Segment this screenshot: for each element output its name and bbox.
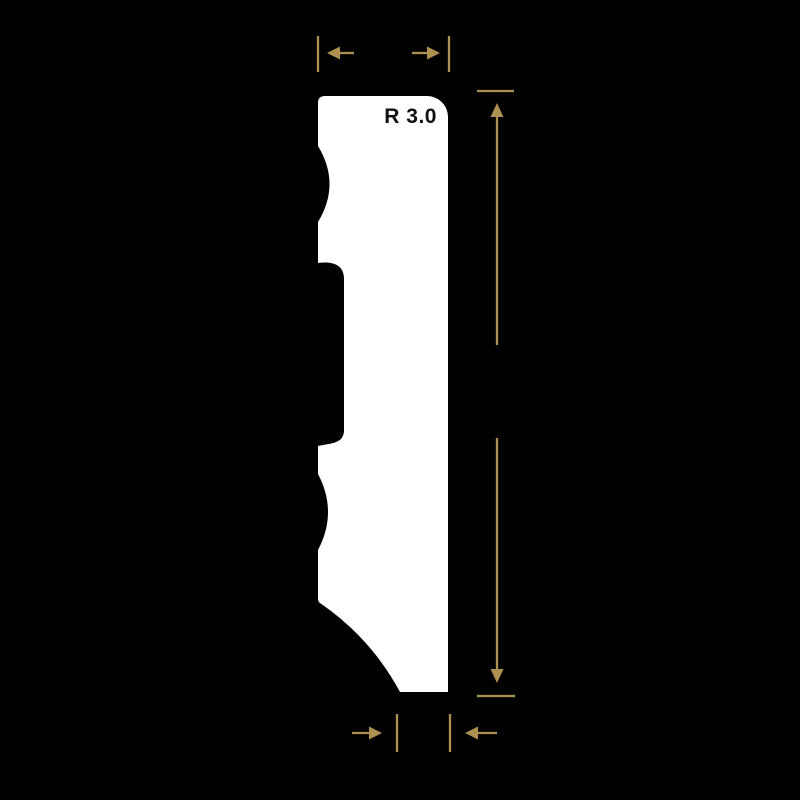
arrow-up-icon — [491, 103, 504, 117]
arrow-left-icon — [327, 47, 340, 60]
top-width-dimension — [318, 36, 449, 72]
arrow-left-icon — [465, 727, 478, 740]
profile-silhouette: R 3.0 — [318, 96, 448, 692]
arrow-down-icon — [491, 669, 504, 683]
profile-outline — [318, 96, 448, 692]
arrow-right-icon — [427, 47, 440, 60]
technical-drawing-canvas: R 3.0 — [0, 0, 800, 800]
corner-radius-label: R 3.0 — [384, 105, 437, 128]
height-dimension — [477, 91, 515, 696]
arrow-right-icon — [369, 727, 382, 740]
bottom-width-dimension — [352, 714, 497, 752]
profile-drawing-svg: R 3.0 — [0, 0, 800, 800]
